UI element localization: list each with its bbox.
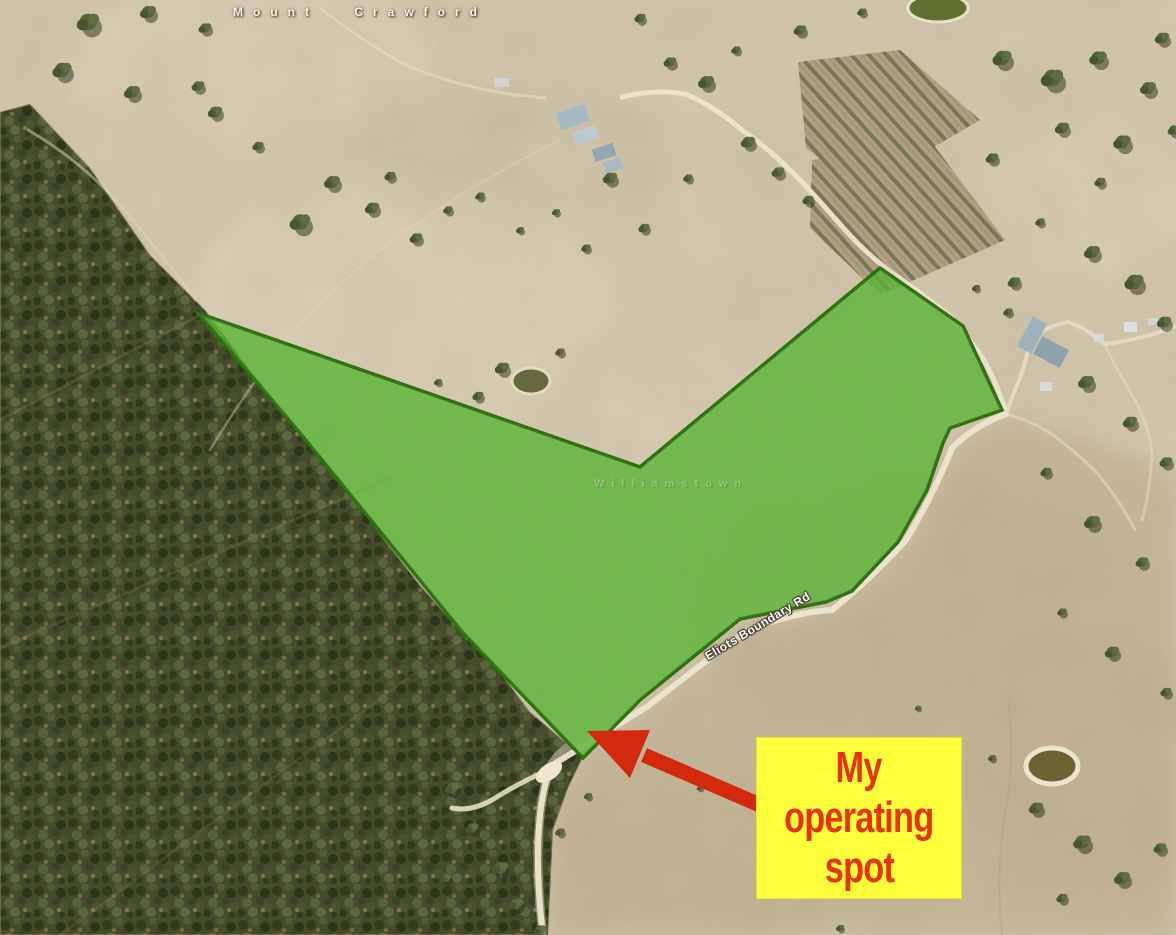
operating-spot-callout: My operating spot [756,737,962,899]
satellite-map[interactable] [0,0,1176,935]
callout-line-3: spot [824,843,893,893]
callout-line-1: My [836,743,882,793]
faint-place-label: Williamstown [594,478,748,490]
annotated-map-screenshot: Mount Crawford Williamstown Eliots Bound… [0,0,1176,935]
callout-line-2: operating [784,793,933,843]
place-label-mount-crawford: Mount Crawford [233,5,487,19]
